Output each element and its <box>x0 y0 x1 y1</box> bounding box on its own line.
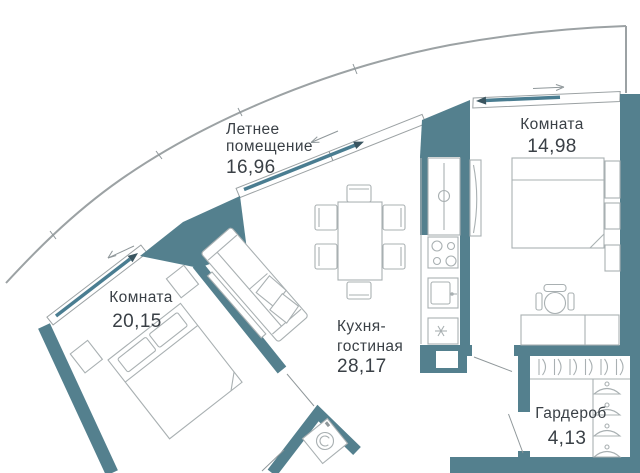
wall-east <box>620 94 640 356</box>
tall-wardrobe <box>470 160 481 236</box>
bedroom-right-area: 14,98 <box>527 136 577 157</box>
wall-wardrobe-west <box>518 356 530 412</box>
wall-east-lower <box>630 356 640 473</box>
bed <box>512 158 604 248</box>
wall-wardrobe-west-stub <box>518 451 530 457</box>
bedroom-right-label: Комната <box>520 116 584 133</box>
terrace-label-line1: Летнее <box>226 121 280 138</box>
nightstand <box>605 203 620 229</box>
stove <box>428 237 458 268</box>
nightstand <box>605 161 620 198</box>
chair <box>383 205 405 230</box>
chair <box>315 244 337 269</box>
nightstand <box>605 245 620 271</box>
chair <box>383 244 405 269</box>
dining-table <box>338 202 382 280</box>
wall-hall-left <box>458 345 472 356</box>
wall-kitchen-bedroom <box>460 155 470 345</box>
chair <box>315 205 337 230</box>
wardrobe-area: 4,13 <box>548 428 587 449</box>
desk <box>521 315 619 345</box>
kitchen-label-line2: гостиная <box>337 338 403 355</box>
wall-south <box>450 457 640 473</box>
bedroom-left-label: Комната <box>109 289 173 306</box>
floor-plan: Летнее помещение 16,96 Комната 14,98 Ком… <box>0 0 640 473</box>
faucet-dot <box>450 292 454 296</box>
bedroom-left-area: 20,15 <box>112 311 162 332</box>
kitchen-label-line1: Кухня- <box>337 318 386 335</box>
terrace-label-line2: помещение <box>226 138 313 155</box>
wall-niche <box>436 351 458 368</box>
chair <box>347 282 371 299</box>
wardrobe-label: Гардероб <box>535 405 606 422</box>
floor-plan-canvas: Летнее помещение 16,96 Комната 14,98 Ком… <box>0 0 640 473</box>
terrace-area: 16,96 <box>226 157 276 178</box>
kitchen-area: 28,17 <box>337 356 387 377</box>
chair <box>347 185 371 202</box>
